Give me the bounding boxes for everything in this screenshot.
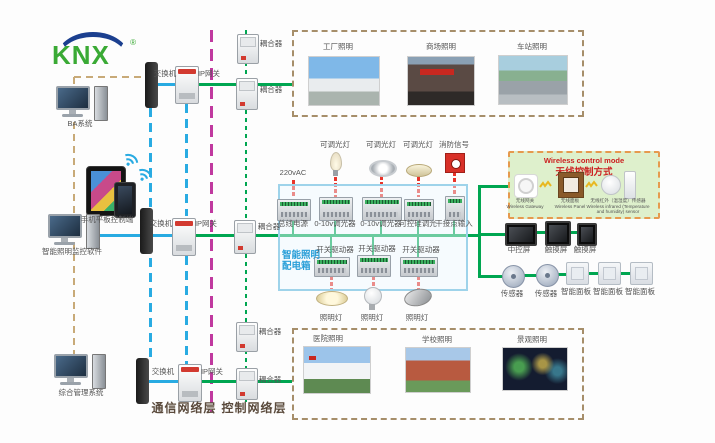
sensor-icon	[536, 264, 559, 287]
smart-panel-icon	[566, 262, 589, 285]
wireless-signal-icon	[585, 180, 599, 190]
hospital-photo	[303, 346, 371, 394]
wireless-gateway-label-en: Wireless Gateway	[506, 204, 543, 209]
wireless-signal-icon	[539, 180, 553, 190]
ip-gateway-label: IP网关	[198, 70, 220, 79]
dry-contact-module	[445, 196, 465, 221]
dimmable-lamp-label: 可调光灯	[320, 141, 350, 150]
ba-system-label: BA系统	[67, 120, 92, 129]
knx-branch-line	[481, 233, 505, 236]
central-screen-icon	[505, 223, 537, 246]
switch-gateway-link	[153, 234, 172, 237]
mall-lighting-label: 商场照明	[426, 43, 456, 52]
monitor	[54, 354, 88, 378]
smart-panel-label: 智能面板	[561, 288, 591, 297]
knx-branch-line	[481, 185, 508, 188]
lamp-label: 照明灯	[406, 314, 429, 323]
dimmer-label: 0-10v调光器	[360, 220, 401, 229]
distribution-box-title-line2: 配电箱	[282, 261, 311, 272]
mains-power-label: 220vAC	[280, 169, 307, 178]
touch-screen-icon	[577, 223, 597, 246]
mall-photo	[407, 56, 475, 106]
ceiling-lamp-icon	[406, 164, 432, 177]
switch-gateway-link	[158, 83, 176, 86]
switch-actuator-label: 开关驱动器	[316, 246, 354, 255]
pc-tower	[92, 354, 106, 389]
smart-panel-label: 智能面板	[593, 288, 623, 297]
station-photo	[498, 55, 568, 105]
switch-actuator-label: 开关驱动器	[358, 245, 396, 254]
dimmable-lamp-label: 可调光灯	[366, 141, 396, 150]
management-system-label: 综合管理系统	[59, 389, 104, 398]
wireless-panel-label-en: Wireless Panel	[555, 204, 586, 209]
coupler-module	[234, 220, 256, 254]
smart-panel-icon	[630, 262, 653, 285]
touch-screen-label: 触摸屏	[574, 246, 597, 255]
pc-tower	[94, 86, 108, 121]
ip-gateway-label: IP网关	[195, 220, 217, 229]
management-computer	[54, 354, 104, 392]
bus-power-module	[277, 199, 311, 221]
touch-screen-icon	[545, 221, 571, 246]
sensor-icon	[502, 265, 525, 288]
switch-label: 交换机	[152, 368, 175, 377]
central-screen-label: 中控屏	[508, 246, 531, 255]
sensor-label: 传感器	[535, 290, 558, 299]
communication-layer-label: 通信网络层	[151, 399, 216, 416]
sensor-label: 传感器	[501, 290, 524, 299]
dimmable-lamp-label: 可调光灯	[403, 141, 433, 150]
dimmer-label: 0-10v调光器	[314, 220, 355, 229]
fire-signal-label: 消防信号	[439, 141, 469, 150]
wireless-gateway-label: 无线网关 Wireless Gateway	[504, 198, 546, 209]
school-photo	[405, 347, 471, 393]
ba-link-line	[74, 76, 145, 78]
network-switch	[140, 208, 153, 254]
ethernet-gateway-line	[185, 104, 188, 216]
phone-device	[114, 182, 136, 218]
fire-alarm-icon	[445, 153, 465, 173]
coupler-label: 耦合器	[259, 376, 282, 385]
wireless-gateway-icon	[514, 174, 538, 198]
monitoring-software-label: 智能照明监控软件	[42, 248, 102, 257]
downlight-icon	[369, 160, 397, 177]
network-switch	[136, 358, 149, 404]
diagram-canvas: KNX ® 交换机 IP网关 耦合器 耦合器 BA系统 手机平板控制端 智能照明…	[0, 0, 715, 443]
landscape-photo	[502, 347, 568, 391]
touch-screen-label: 触摸屏	[545, 246, 568, 255]
wireless-sensor-round-icon	[601, 175, 621, 195]
station-lighting-label: 车站照明	[517, 43, 547, 52]
knx-branch-line	[481, 275, 502, 278]
wireless-sensor-label-en: Wireless infrared (Temperature and humid…	[586, 204, 649, 215]
knx-logo-text: KNX	[52, 40, 110, 71]
coupler-module	[237, 34, 259, 64]
mobile-control-label: 手机平板控制端	[81, 216, 134, 225]
ip-gateway-module	[178, 364, 202, 402]
pc-switch-link	[96, 234, 140, 237]
factory-lighting-label: 工厂照明	[323, 43, 353, 52]
ceiling-lamp-icon	[316, 291, 348, 306]
bus-power-label: 总线电源	[278, 220, 308, 229]
dimmer-module	[362, 197, 402, 221]
knx-branch-trunk	[478, 185, 481, 278]
coupler-label: 耦合器	[258, 223, 281, 232]
switch-actuator-module	[400, 257, 438, 277]
school-lighting-label: 学校照明	[422, 336, 452, 345]
wireless-sensor-label: 无线红外（温湿度）传感器 Wireless infrared (Temperat…	[583, 198, 653, 215]
coupler-label: 耦合器	[260, 40, 283, 49]
scr-dimmer-module	[404, 199, 434, 221]
lamp-label: 照明灯	[361, 314, 384, 323]
smart-panel-label: 智能面板	[625, 288, 655, 297]
switch-actuator-module	[357, 255, 391, 277]
coupler-module	[236, 78, 258, 110]
monitor	[56, 86, 90, 110]
dry-contact-label: 干接点输入	[435, 220, 473, 229]
smart-panel-icon	[598, 262, 621, 285]
ip-gateway-module	[172, 218, 196, 256]
dimmer-module	[319, 197, 353, 221]
factory-photo	[308, 56, 380, 106]
distribution-box-title-line1: 智能照明	[282, 250, 320, 261]
ip-gateway-label: IP网关	[201, 368, 223, 377]
scr-dimmer-label: 可控硅调光	[399, 220, 437, 229]
ip-gateway-module	[175, 66, 199, 104]
bulb-lamp-icon	[364, 287, 382, 305]
candle-lamp-icon	[330, 152, 342, 171]
knx-logo: KNX ®	[52, 32, 136, 74]
coupler-label: 耦合器	[259, 328, 282, 337]
switch-label: 交换机	[150, 220, 173, 229]
coupler-module	[236, 368, 258, 400]
switch-gateway-link	[149, 380, 178, 383]
control-layer-label: 控制网络层	[221, 399, 286, 416]
lamp-label: 照明灯	[320, 314, 343, 323]
wireless-panel-icon	[558, 172, 584, 198]
landscape-lighting-label: 景观照明	[517, 336, 547, 345]
monitor	[48, 214, 82, 238]
ethernet-gateway-line	[185, 256, 188, 364]
coupler-module	[236, 322, 258, 352]
switch-label: 交换机	[154, 70, 177, 79]
knx-logo-registered-mark: ®	[130, 38, 136, 47]
wireless-sensor-rect-icon	[624, 171, 636, 199]
coupler-label: 耦合器	[260, 86, 283, 95]
switch-actuator-label: 开关驱动器	[402, 246, 440, 255]
hospital-lighting-label: 医院照明	[313, 335, 343, 344]
